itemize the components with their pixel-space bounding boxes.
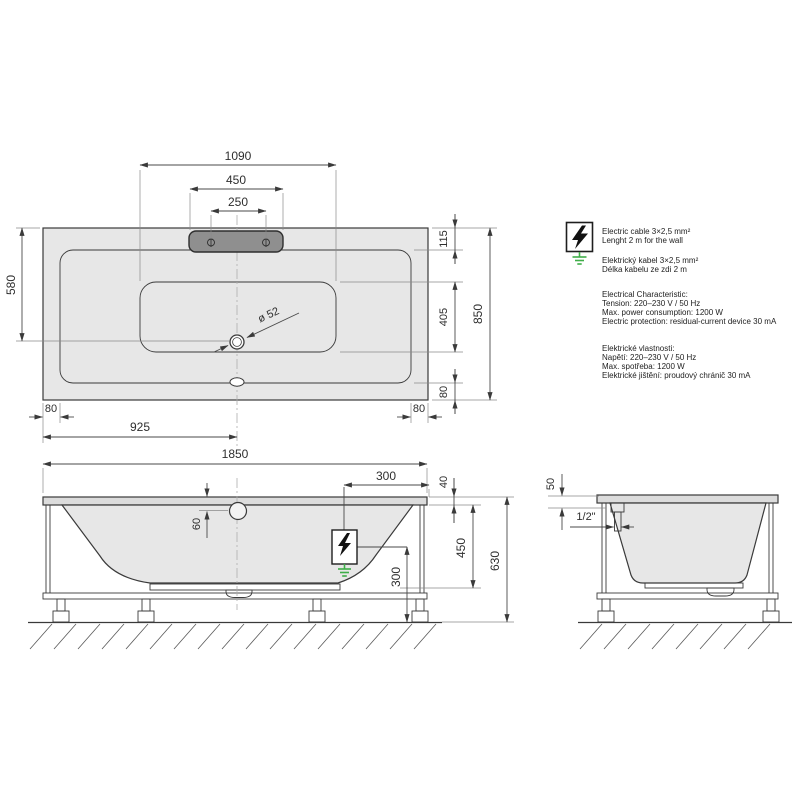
note-cable-en: Electric cable 3×2,5 mm² Lenght 2 m for … xyxy=(602,227,798,245)
svg-text:850: 850 xyxy=(471,304,485,324)
leg xyxy=(138,599,154,622)
svg-text:80: 80 xyxy=(45,403,57,415)
dimension-shell-depth: 450 xyxy=(454,505,473,588)
top-view: 1090 450 250 580 115 405 80 xyxy=(4,149,497,448)
svg-text:1/2": 1/2" xyxy=(576,511,595,523)
dimension-rim-foot-width: 80 xyxy=(438,369,455,414)
leg xyxy=(309,599,325,622)
svg-text:40: 40 xyxy=(438,476,450,488)
end-view: 50 1/2" xyxy=(545,474,792,649)
note-electrical-en: Electrical Characteristic: Tension: 220–… xyxy=(602,290,798,326)
bathtub-technical-drawing: 1090 450 250 580 115 405 80 xyxy=(0,0,800,800)
dimension-rim-left: 80 xyxy=(29,403,74,417)
note-electrical-cz: Elektrické vlastnosti: Napětí: 220–230 V… xyxy=(602,344,798,380)
svg-text:300: 300 xyxy=(376,469,396,483)
leg xyxy=(53,599,69,622)
earth-ground-icon xyxy=(573,252,587,264)
svg-text:925: 925 xyxy=(130,420,150,434)
svg-text:300: 300 xyxy=(389,567,403,587)
svg-text:250: 250 xyxy=(228,195,248,209)
top-view-outline xyxy=(43,228,428,400)
drain-trap xyxy=(226,590,252,598)
dimension-overall-height: 630 xyxy=(488,497,507,622)
dimension-headrest-width: 450 xyxy=(190,173,283,189)
dimension-inner-basin-length: 1090 xyxy=(140,149,336,165)
floor-hatching xyxy=(578,623,792,650)
leg xyxy=(598,599,614,622)
dimension-overall-length: 1850 xyxy=(43,447,427,464)
dimension-rim-offset: 50 xyxy=(545,474,562,530)
svg-text:60: 60 xyxy=(191,518,203,530)
svg-text:450: 450 xyxy=(454,538,468,558)
svg-text:405: 405 xyxy=(438,308,450,326)
svg-text:580: 580 xyxy=(4,275,18,295)
headrest xyxy=(189,231,283,252)
dimension-basin-depth-left: 580 xyxy=(4,228,22,341)
svg-text:1090: 1090 xyxy=(225,149,252,163)
dimension-overall-width: 850 xyxy=(471,228,490,400)
leg xyxy=(763,599,779,622)
svg-text:50: 50 xyxy=(545,478,557,490)
electric-cable-icon xyxy=(565,221,595,267)
svg-text:450: 450 xyxy=(226,173,246,187)
dimension-rim-thickness: 40 xyxy=(438,476,454,523)
drain xyxy=(230,335,244,349)
drain-trap xyxy=(707,588,734,596)
leg xyxy=(412,599,428,622)
svg-text:115: 115 xyxy=(438,230,450,248)
floor-hatching xyxy=(28,623,442,650)
electrical-notes: Electric cable 3×2,5 mm² Lenght 2 m for … xyxy=(602,227,798,380)
svg-text:80: 80 xyxy=(413,403,425,415)
svg-text:80: 80 xyxy=(438,386,450,398)
side-view: 1850 300 40 60 450 630 300 xyxy=(28,447,514,649)
svg-text:630: 630 xyxy=(488,551,502,571)
dimension-rim-head-width: 115 xyxy=(438,214,455,264)
dimension-cable-from-end: 300 xyxy=(344,469,429,485)
overflow-hole xyxy=(230,503,247,520)
note-cable-cz: Elektrický kabel 3×2,5 mm² Délka kabelu … xyxy=(602,256,798,274)
overflow-slot xyxy=(230,378,244,386)
svg-text:1850: 1850 xyxy=(222,447,249,461)
dimension-cable-above-floor: 300 xyxy=(389,547,407,622)
dimension-rim-right: 80 xyxy=(397,403,442,417)
dimension-headrest-hole-spacing: 250 xyxy=(211,195,266,211)
dimension-basin-floor-width: 405 xyxy=(438,282,455,352)
dimension-edge-to-center: 925 xyxy=(43,420,237,437)
